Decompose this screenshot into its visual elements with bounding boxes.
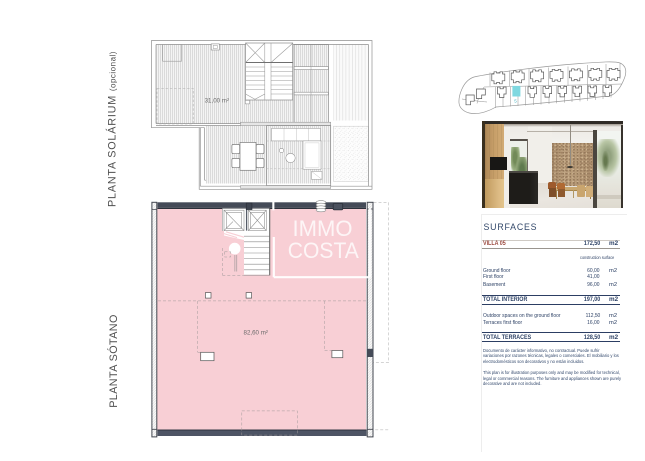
svg-text:COSTA: COSTA — [288, 238, 359, 263]
svg-text:5: 5 — [514, 99, 517, 104]
svg-text:82,60 m²: 82,60 m² — [244, 330, 268, 337]
svg-text:31,00 m²: 31,00 m² — [205, 97, 229, 104]
